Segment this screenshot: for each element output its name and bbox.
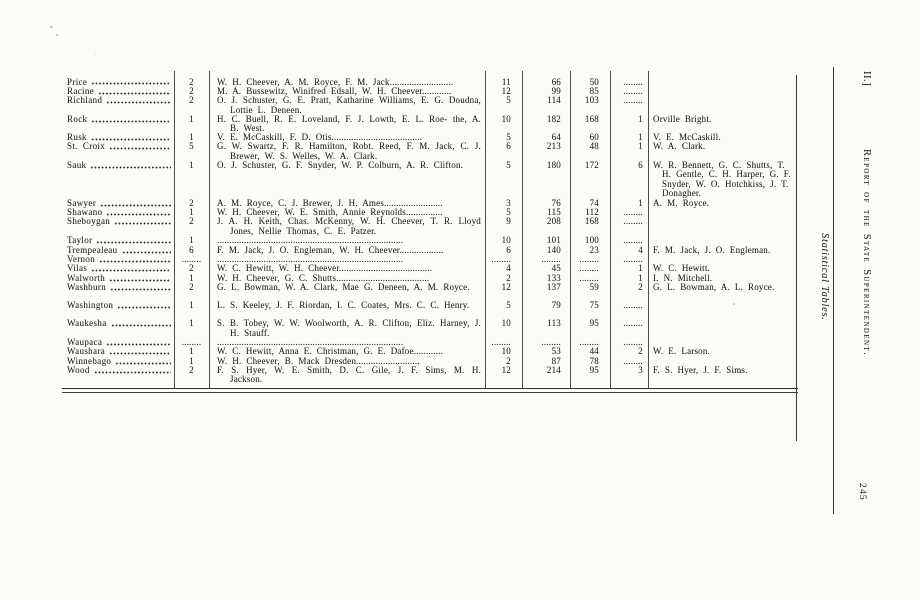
county-label: Rock bbox=[67, 115, 87, 124]
value2-cell: 45 bbox=[522, 264, 570, 273]
county-cell: Richland bbox=[64, 96, 174, 105]
count-cell: ........ bbox=[174, 338, 209, 347]
value3-cell: ........ bbox=[570, 338, 610, 347]
county-cell: Trempealeau bbox=[64, 246, 174, 255]
names-cell: ........................................… bbox=[209, 236, 485, 245]
count-cell: 2 bbox=[174, 366, 209, 375]
value1-cell: 5 bbox=[485, 301, 522, 310]
dot-leader bbox=[91, 120, 171, 123]
table-row: Sheboygan 2 J. A. H. Keith, Chas. McKenn… bbox=[64, 217, 797, 236]
value1-cell: ........ bbox=[485, 255, 522, 264]
table-row: Rusk 1 V. E. McCaskill, F. D. Otis......… bbox=[64, 133, 797, 142]
appointees-cell: A. M. Royce. bbox=[648, 199, 797, 208]
count-cell: 2 bbox=[174, 264, 209, 273]
page-number: 245 bbox=[857, 483, 867, 501]
value1-cell: 12 bbox=[485, 283, 522, 292]
table-row: Sawyer 2 A. M. Royce, C. J. Brewer, J. H… bbox=[64, 199, 797, 208]
names-cell: G. W. Swartz, F. R. Hamilton, Robt. Reed… bbox=[209, 142, 485, 161]
names-cell: F. S. Hyer, W. E. Smith, D. C. Gile, J. … bbox=[209, 366, 485, 385]
table-row: Waukesha 1 S. B. Tobey, W. W. Woolworth,… bbox=[64, 319, 797, 338]
county-label: Richland bbox=[67, 96, 102, 105]
value1-cell: 5 bbox=[485, 133, 522, 142]
appointees-cell: F. S. Hyer, J. F. Sims. bbox=[648, 366, 797, 375]
county-label: Trempealeau bbox=[67, 246, 118, 255]
names-cell: ........................................… bbox=[209, 338, 485, 347]
value4-cell: 1 bbox=[610, 115, 648, 124]
appointees-cell: W. R. Bennett, G. C. Shutts, T. H. Gentl… bbox=[648, 161, 797, 199]
value1-cell: 2 bbox=[485, 274, 522, 283]
value3-cell: 168 bbox=[570, 217, 610, 226]
county-cell: Waukesha bbox=[64, 319, 174, 328]
value3-cell: 75 bbox=[570, 301, 610, 310]
value4-cell: 1 bbox=[610, 264, 648, 273]
dot-leader bbox=[110, 288, 171, 291]
margin-rule-outer bbox=[833, 67, 834, 514]
value1-cell: ........ bbox=[485, 338, 522, 347]
value1-cell: 10 bbox=[485, 115, 522, 124]
names-cell: A. M. Royce, C. J. Brewer, J. H. Ames...… bbox=[209, 199, 485, 208]
value4-cell: 4 bbox=[610, 246, 648, 255]
county-cell: Vilas bbox=[64, 264, 174, 273]
running-title: Report of the State Superintendent. bbox=[861, 149, 872, 356]
value4-cell: ........ bbox=[610, 236, 648, 245]
count-cell: 1 bbox=[174, 133, 209, 142]
appointees-cell: G. L. Bowman, A. L. Royce. bbox=[648, 283, 797, 292]
margin-rule-inner bbox=[796, 75, 797, 441]
value3-cell: ........ bbox=[570, 255, 610, 264]
county-cell: Sauk bbox=[64, 161, 174, 170]
county-label: Vernon bbox=[67, 255, 95, 264]
count-cell: 1 bbox=[174, 236, 209, 245]
county-cell: Rusk bbox=[64, 133, 174, 142]
table-row: Vernon ........ ........................… bbox=[64, 255, 797, 264]
appointees-cell: V. E. McCaskill. bbox=[648, 133, 797, 142]
value4-cell: 1 bbox=[610, 199, 648, 208]
table-row: Washburn 2 G. L. Bowman, W. A. Clark, Ma… bbox=[64, 283, 797, 292]
county-label: Taylor bbox=[67, 236, 92, 245]
count-cell: 1 bbox=[174, 161, 209, 170]
county-cell: Taylor bbox=[64, 236, 174, 245]
dot-leader bbox=[98, 92, 171, 95]
value2-cell: 66 bbox=[522, 78, 570, 87]
value1-cell: 5 bbox=[485, 208, 522, 217]
county-cell: Washburn bbox=[64, 283, 174, 292]
county-cell: Sheboygan bbox=[64, 217, 174, 226]
value3-cell: 74 bbox=[570, 199, 610, 208]
value2-cell: 137 bbox=[522, 283, 570, 292]
table-row: Vilas 2 W. C. Hewitt, W. H. Cheever.....… bbox=[64, 264, 797, 273]
value2-cell: 140 bbox=[522, 246, 570, 255]
value4-cell: ........ bbox=[610, 338, 648, 347]
value2-cell: 208 bbox=[522, 217, 570, 226]
names-cell: O. J. Schuster, G. E. Pratt, Katharine W… bbox=[209, 96, 485, 115]
names-cell: W. H. Cheever, A. M. Royce, F. M. Jack..… bbox=[209, 78, 485, 87]
value4-cell: 2 bbox=[610, 283, 648, 292]
county-cell: Rock bbox=[64, 115, 174, 124]
table-row: Walworth 1 W. H. Cheever, G. C. Shutts..… bbox=[64, 274, 797, 283]
value1-cell: 6 bbox=[485, 246, 522, 255]
dot-leader bbox=[91, 138, 171, 141]
value1-cell: 9 bbox=[485, 217, 522, 226]
county-cell: Shawano bbox=[64, 208, 174, 217]
table-row: Sauk 1 O. J. Schuster, G. F. Snyder, W. … bbox=[64, 161, 797, 199]
value3-cell: 112 bbox=[570, 208, 610, 217]
value3-cell: 172 bbox=[570, 161, 610, 170]
section-title: Statistical Tables. bbox=[819, 233, 830, 321]
table-row: Waushara 1 W. C. Hewitt, Anna E. Christm… bbox=[64, 347, 797, 356]
value1-cell: 10 bbox=[485, 319, 522, 328]
table-row: Washington 1 L. S. Keeley, J. F. Riordan… bbox=[64, 301, 797, 310]
county-label: Waukesha bbox=[67, 319, 107, 328]
value3-cell: 44 bbox=[570, 347, 610, 356]
table-row: Taylor 1 ...............................… bbox=[64, 236, 797, 245]
county-label: St. Croix bbox=[67, 142, 105, 151]
dot-leader bbox=[106, 343, 171, 346]
value1-cell: 5 bbox=[485, 96, 522, 105]
dot-leader bbox=[106, 213, 171, 216]
names-cell: F. M. Jack, J. O. Engleman, W. H. Cheeve… bbox=[209, 246, 485, 255]
county-label: Waushara bbox=[67, 347, 105, 356]
value4-cell: ........ bbox=[610, 78, 648, 87]
dot-leader bbox=[109, 279, 171, 282]
names-cell: G. L. Bowman, W. A. Clark, Mae G. Deneen… bbox=[209, 283, 485, 292]
value1-cell: 12 bbox=[485, 366, 522, 375]
count-cell: ........ bbox=[174, 255, 209, 264]
names-cell: W. H. Cheever, B. Mack Dresden..........… bbox=[209, 357, 485, 366]
county-cell: Waupaca bbox=[64, 338, 174, 347]
scanned-report-page: Price 2 W. H. Cheever, A. M. Royce, F. M… bbox=[0, 0, 920, 600]
county-label: Sheboygan bbox=[67, 217, 110, 226]
table-row: Winnebago 1 W. H. Cheever, B. Mack Dresd… bbox=[64, 357, 797, 366]
value4-cell: 3 bbox=[610, 366, 648, 375]
value2-cell: 114 bbox=[522, 96, 570, 105]
value2-cell: 113 bbox=[522, 319, 570, 328]
value3-cell: 85 bbox=[570, 87, 610, 96]
value4-cell: ........ bbox=[610, 255, 648, 264]
names-cell: W. C. Hewitt, Anna E. Christman, G. E. D… bbox=[209, 347, 485, 356]
value2-cell: 214 bbox=[522, 366, 570, 375]
appointees-cell: W. E. Larson. bbox=[648, 347, 797, 356]
value4-cell: ........ bbox=[610, 208, 648, 217]
value2-cell: 101 bbox=[522, 236, 570, 245]
value1-cell: 12 bbox=[485, 87, 522, 96]
county-label: Waupaca bbox=[67, 338, 102, 347]
value3-cell: 100 bbox=[570, 236, 610, 245]
appointees-cell: F. M. Jack, J. O. Engleman. bbox=[648, 246, 797, 255]
value4-cell: ........ bbox=[610, 357, 648, 366]
value3-cell: 95 bbox=[570, 366, 610, 375]
names-cell: W. H. Cheever, G. C. Shutts.............… bbox=[209, 274, 485, 283]
value1-cell: 5 bbox=[485, 161, 522, 170]
county-label: Price bbox=[67, 78, 87, 87]
value3-cell: 59 bbox=[570, 283, 610, 292]
scan-speck bbox=[56, 34, 58, 36]
county-cell: Walworth bbox=[64, 274, 174, 283]
value1-cell: 10 bbox=[485, 236, 522, 245]
dot-leader bbox=[117, 306, 171, 309]
value3-cell: 168 bbox=[570, 115, 610, 124]
names-cell: O. J. Schuster, G. F. Snyder, W. P. Colb… bbox=[209, 161, 485, 170]
names-cell: ........................................… bbox=[209, 255, 485, 264]
count-cell: 2 bbox=[174, 78, 209, 87]
count-cell: 2 bbox=[174, 87, 209, 96]
value2-cell: ........ bbox=[522, 255, 570, 264]
count-cell: 2 bbox=[174, 199, 209, 208]
value2-cell: 133 bbox=[522, 274, 570, 283]
county-label: Wood bbox=[67, 366, 90, 375]
table-row: Rock 1 H. C. Buell, R. E. Loveland, F. J… bbox=[64, 115, 797, 134]
value3-cell: 23 bbox=[570, 246, 610, 255]
count-cell: 2 bbox=[174, 283, 209, 292]
names-cell: M. A. Bussewitz, Winifred Edsall, W. H. … bbox=[209, 87, 485, 96]
names-cell: S. B. Tobey, W. W. Woolworth, A. R. Clif… bbox=[209, 319, 485, 338]
dot-leader bbox=[91, 269, 171, 272]
county-cell: Wood bbox=[64, 366, 174, 375]
value2-cell: 53 bbox=[522, 347, 570, 356]
value2-cell: 99 bbox=[522, 87, 570, 96]
value1-cell: 6 bbox=[485, 142, 522, 151]
names-cell: W. H. Cheever, W. E. Smith, Annie Reynol… bbox=[209, 208, 485, 217]
county-label: Racine bbox=[67, 87, 94, 96]
value2-cell: 213 bbox=[522, 142, 570, 151]
value2-cell: 87 bbox=[522, 357, 570, 366]
value1-cell: 11 bbox=[485, 78, 522, 87]
county-cell: Vernon bbox=[64, 255, 174, 264]
value2-cell: ........ bbox=[522, 338, 570, 347]
scan-speck bbox=[95, 54, 96, 55]
names-cell: V. E. McCaskill, F. D. Otis.............… bbox=[209, 133, 485, 142]
dot-leader bbox=[109, 352, 171, 355]
value3-cell: ........ bbox=[570, 264, 610, 273]
value2-cell: 64 bbox=[522, 133, 570, 142]
table-row: Racine 2 M. A. Bussewitz, Winifred Edsal… bbox=[64, 87, 797, 96]
value3-cell: 103 bbox=[570, 96, 610, 105]
count-cell: 1 bbox=[174, 319, 209, 328]
value4-cell: ........ bbox=[610, 301, 648, 310]
value3-cell: 95 bbox=[570, 319, 610, 328]
count-cell: 1 bbox=[174, 357, 209, 366]
value2-cell: 180 bbox=[522, 161, 570, 170]
dot-leader bbox=[115, 362, 171, 365]
value2-cell: 76 bbox=[522, 199, 570, 208]
value4-cell: ........ bbox=[610, 87, 648, 96]
table-row: Trempealeau 6 F. M. Jack, J. O. Engleman… bbox=[64, 246, 797, 255]
value2-cell: 115 bbox=[522, 208, 570, 217]
appointees-cell: I. N. Mitchell. bbox=[648, 274, 797, 283]
count-cell: 1 bbox=[174, 301, 209, 310]
value2-cell: 182 bbox=[522, 115, 570, 124]
county-cell: Washington bbox=[64, 301, 174, 310]
value3-cell: 60 bbox=[570, 133, 610, 142]
dot-leader bbox=[99, 260, 171, 263]
value3-cell: ........ bbox=[570, 274, 610, 283]
dot-leader bbox=[91, 82, 171, 85]
dot-leader bbox=[90, 166, 171, 169]
names-cell: J. A. H. Keith, Chas. McKenny, W. H. Che… bbox=[209, 217, 485, 236]
table-row: Richland 2 O. J. Schuster, G. E. Pratt, … bbox=[64, 96, 797, 115]
dot-leader bbox=[122, 251, 171, 254]
value3-cell: 48 bbox=[570, 142, 610, 151]
table-row: St. Croix 5 G. W. Swartz, F. R. Hamilton… bbox=[64, 142, 797, 161]
dot-leader bbox=[94, 371, 171, 374]
county-label: Washburn bbox=[67, 283, 106, 292]
value4-cell: 2 bbox=[610, 347, 648, 356]
dot-leader bbox=[109, 147, 171, 150]
table-row: Shawano 1 W. H. Cheever, W. E. Smith, An… bbox=[64, 208, 797, 217]
county-cell: Winnebago bbox=[64, 357, 174, 366]
count-cell: 1 bbox=[174, 274, 209, 283]
value4-cell: 6 bbox=[610, 161, 648, 170]
value1-cell: 4 bbox=[485, 264, 522, 273]
dot-leader bbox=[100, 204, 171, 207]
dot-leader bbox=[111, 324, 171, 327]
appointees-cell: W. C. Hewitt. bbox=[648, 264, 797, 273]
value1-cell: 2 bbox=[485, 357, 522, 366]
names-cell: L. S. Keeley, J. F. Riordan, I. C. Coate… bbox=[209, 301, 485, 310]
county-label: Walworth bbox=[67, 274, 105, 283]
county-label: Sawyer bbox=[67, 199, 96, 208]
volume-label: II.] bbox=[861, 71, 872, 86]
county-cell: Racine bbox=[64, 87, 174, 96]
dot-leader bbox=[96, 241, 171, 244]
county-cell: St. Croix bbox=[64, 142, 174, 151]
table-bottom-rule bbox=[62, 388, 798, 390]
count-cell: 2 bbox=[174, 217, 209, 226]
names-cell: H. C. Buell, R. E. Loveland, F. J. Lowth… bbox=[209, 115, 485, 134]
table-bottom-rule bbox=[62, 392, 798, 393]
value3-cell: 78 bbox=[570, 357, 610, 366]
scan-speck bbox=[50, 25, 54, 28]
appointees-cell: W. A. Clark. bbox=[648, 142, 797, 151]
value1-cell: 10 bbox=[485, 347, 522, 356]
value4-cell: ........ bbox=[610, 319, 648, 328]
value2-cell: 79 bbox=[522, 301, 570, 310]
value1-cell: 3 bbox=[485, 199, 522, 208]
county-cell: Waushara bbox=[64, 347, 174, 356]
value4-cell: ........ bbox=[610, 96, 648, 105]
county-cell: Price bbox=[64, 78, 174, 87]
county-label: Sauk bbox=[67, 161, 86, 170]
county-label: Vilas bbox=[67, 264, 87, 273]
county-cell: Sawyer bbox=[64, 199, 174, 208]
table-row: Waupaca ........ .......................… bbox=[64, 338, 797, 347]
count-cell: 5 bbox=[174, 142, 209, 151]
value4-cell: 1 bbox=[610, 274, 648, 283]
county-label: Washington bbox=[67, 301, 113, 310]
dot-leader bbox=[114, 222, 171, 225]
county-label: Winnebago bbox=[67, 357, 111, 366]
table-row: Price 2 W. H. Cheever, A. M. Royce, F. M… bbox=[64, 78, 797, 87]
value4-cell: 1 bbox=[610, 133, 648, 142]
county-label: Rusk bbox=[67, 133, 87, 142]
count-cell: 6 bbox=[174, 246, 209, 255]
appointees-cell: Orville Bright. bbox=[648, 115, 797, 124]
count-cell: 2 bbox=[174, 96, 209, 105]
value3-cell: 50 bbox=[570, 78, 610, 87]
value4-cell: ........ bbox=[610, 217, 648, 226]
count-cell: 1 bbox=[174, 115, 209, 124]
value4-cell: 1 bbox=[610, 142, 648, 151]
table-row: Wood 2 F. S. Hyer, W. E. Smith, D. C. Gi… bbox=[64, 366, 797, 385]
dot-leader bbox=[106, 101, 171, 104]
names-cell: W. C. Hewitt, W. H. Cheever.............… bbox=[209, 264, 485, 273]
count-cell: 1 bbox=[174, 208, 209, 217]
count-cell: 1 bbox=[174, 347, 209, 356]
county-label: Shawano bbox=[67, 208, 102, 217]
